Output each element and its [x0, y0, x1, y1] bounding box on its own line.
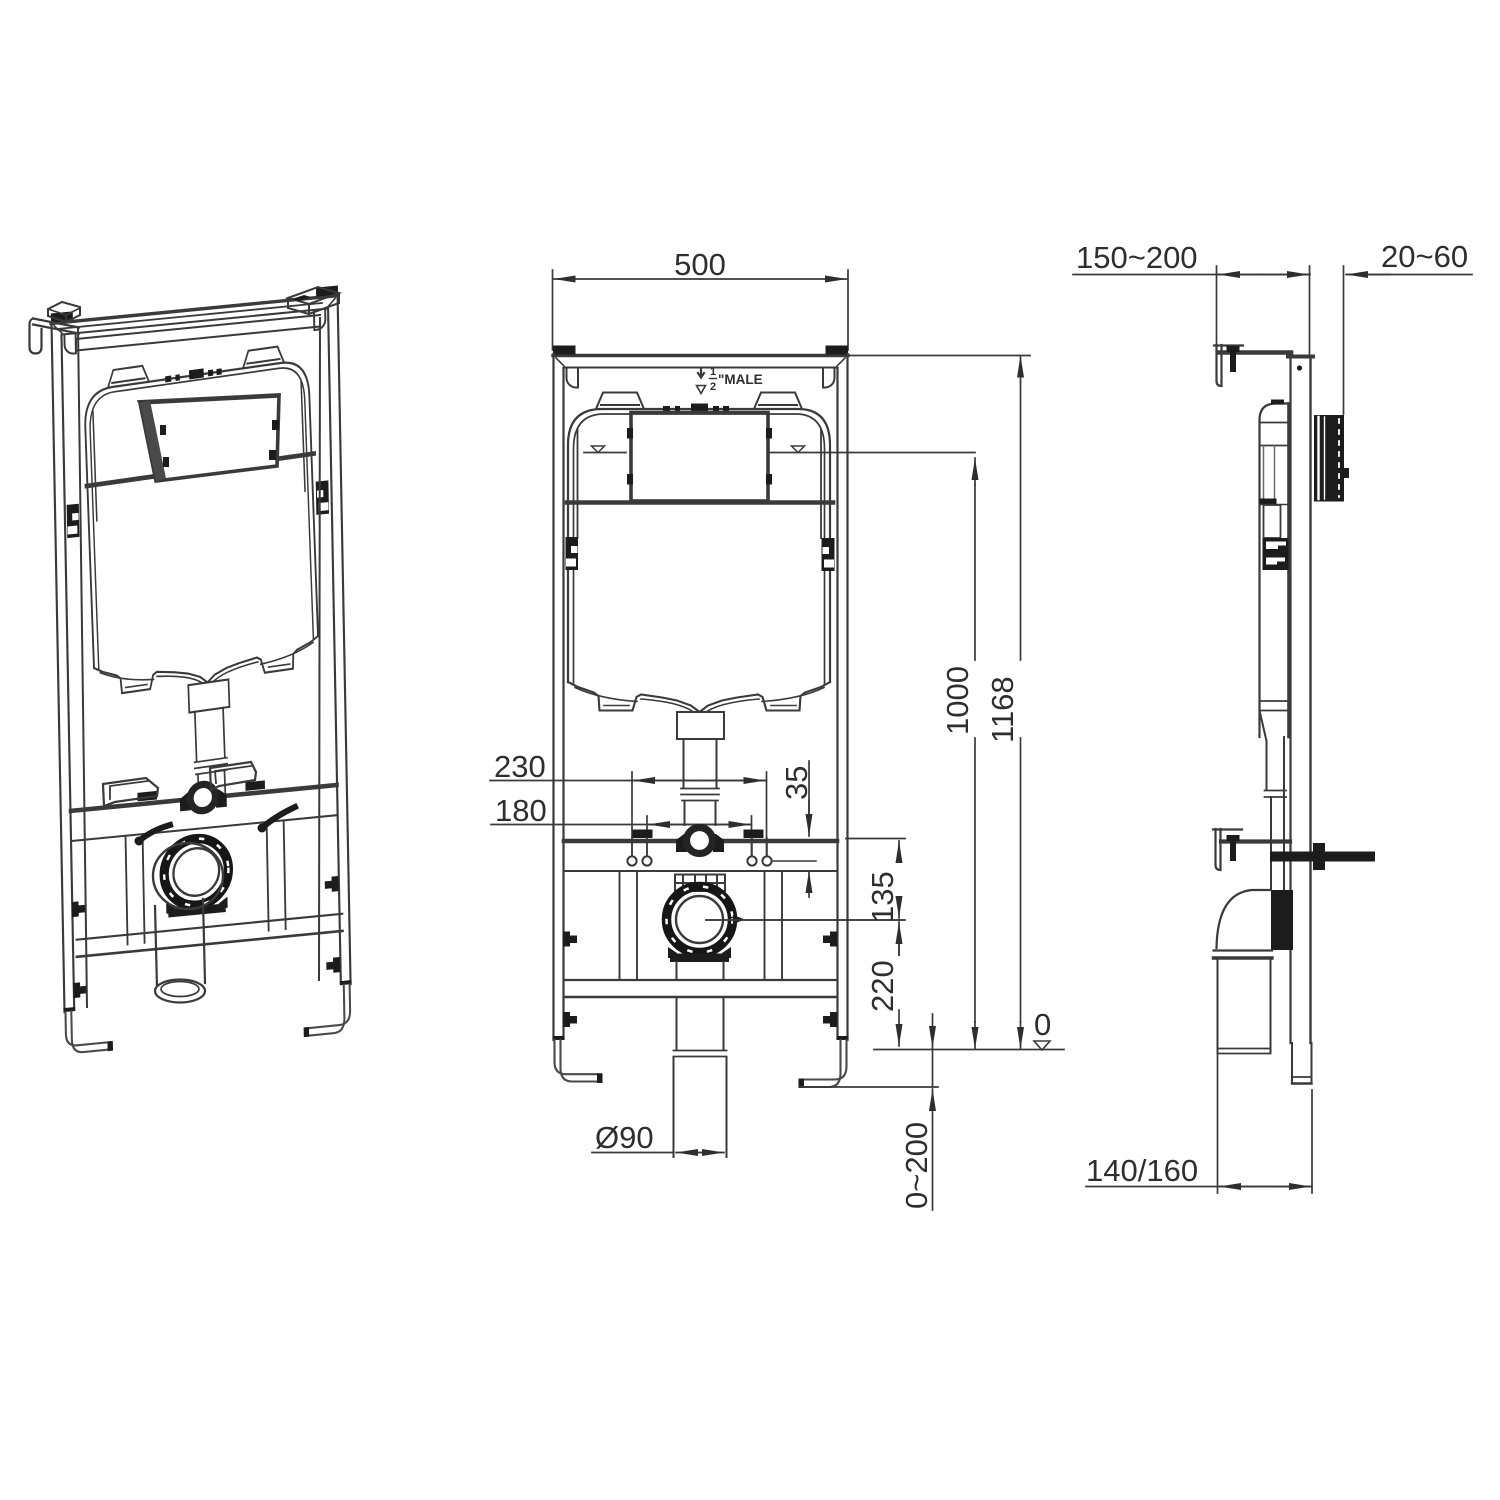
svg-text:180: 180: [495, 793, 547, 828]
svg-text:Ø90: Ø90: [595, 1120, 654, 1155]
svg-text:500: 500: [674, 247, 726, 282]
svg-text:"MALE: "MALE: [718, 372, 763, 387]
svg-text:20~60: 20~60: [1381, 239, 1468, 274]
svg-text:1: 1: [710, 366, 716, 378]
svg-text:150~200: 150~200: [1076, 240, 1198, 275]
svg-text:0: 0: [1034, 1007, 1051, 1042]
svg-text:0~200: 0~200: [899, 1122, 934, 1209]
svg-text:140/160: 140/160: [1086, 1153, 1198, 1188]
svg-text:2: 2: [710, 381, 716, 393]
svg-text:135: 135: [865, 871, 900, 923]
svg-text:220: 220: [865, 960, 900, 1012]
svg-text:1000: 1000: [940, 666, 975, 735]
svg-text:1168: 1168: [985, 676, 1020, 743]
svg-text:230: 230: [494, 749, 546, 784]
